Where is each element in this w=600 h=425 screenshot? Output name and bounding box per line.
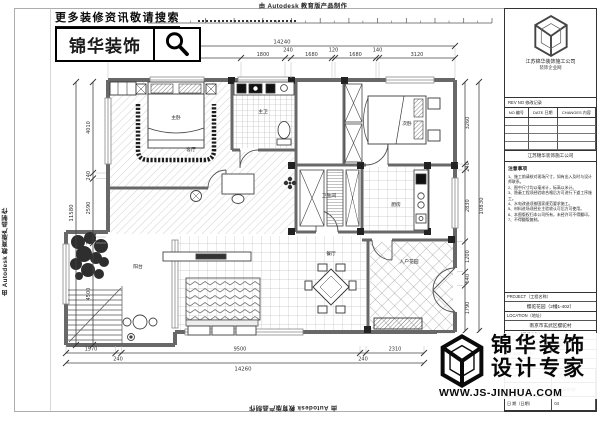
magnifier-cell	[153, 29, 199, 60]
dim-right: 10830 3260 240 2830 1200 540 1790	[457, 79, 485, 334]
svg-text:1200: 1200	[465, 250, 471, 263]
footer-brand-text: 锦华装饰 设计专家	[491, 334, 587, 380]
dim-bottom: 1970 240 9500 240 2310 14260	[63, 346, 427, 373]
search-hint-text: 更多装修资讯敬请搜索	[55, 9, 180, 27]
svg-text:240: 240	[358, 357, 368, 363]
brand-name: 锦华装饰	[57, 29, 153, 60]
brand-search-box: 锦华装饰	[55, 27, 201, 62]
svg-text:11580: 11580	[69, 204, 75, 222]
room-label-entry-garden: 入户花园	[399, 258, 418, 265]
svg-text:540: 540	[465, 274, 471, 284]
svg-text:2590: 2590	[86, 202, 92, 215]
footer-brand-line2: 设计专家	[491, 357, 587, 380]
svg-text:3120: 3120	[411, 52, 424, 58]
svg-text:1790: 1790	[465, 302, 471, 315]
note-line: 1、施工前请核对现场尺寸，如有出入及时与设计师联系。	[508, 174, 593, 185]
notes-title: 注意事项	[508, 165, 593, 172]
dim-left: 11580 4010 240 2590 240 4500	[69, 79, 106, 348]
title-block-logo-section: 江苏锦华装饰施工公司 装饰企业网	[505, 9, 596, 98]
company-row: 江苏锦华装饰施工公司	[505, 151, 596, 162]
svg-text:2310: 2310	[389, 347, 402, 353]
autodesk-banner-bottom: 由 Autodesk 教育版产品制作	[218, 404, 368, 413]
room-label-kitchen: 厨房	[391, 201, 401, 208]
room-label-bathroom: 卫生间	[322, 192, 337, 199]
room-label-master-bedroom: 主卧	[171, 114, 181, 121]
kitchen-appliances	[414, 170, 428, 230]
drawing-sheet: 主卧 客厅 主卫 次卧 卫生间 厨房 餐厅 入户花园 阳台 14240 5470…	[0, 0, 600, 420]
note-line: 7、不得翻版复制。	[508, 217, 593, 222]
dotted-line	[198, 20, 296, 22]
bedroom2-bed	[364, 96, 441, 144]
footer-brand-line1: 锦华装饰	[491, 334, 587, 357]
project-label: PROJECT（工程名称）	[505, 293, 596, 302]
location-label: LOCATION（地址）	[505, 312, 596, 321]
revision-caption: REV NO 修改记录	[505, 98, 596, 108]
location-value: 南京市玄武区樱驼村	[505, 321, 596, 331]
note-line: 3、隐蔽工程须经验收合格后方可进行下道工序施工。	[508, 190, 593, 201]
cube-logo-icon	[532, 14, 570, 58]
svg-text:240: 240	[113, 357, 123, 363]
hall-closet	[345, 84, 362, 162]
footer-website: WWW.JS-JINHUA.COM	[439, 387, 597, 399]
revision-table-rows	[505, 118, 596, 151]
sign-row-date: 日 期（日期） 04	[505, 397, 596, 411]
rev-col-changes: CHANGES 内容	[558, 108, 596, 117]
room-label-master-bath: 主卫	[258, 108, 268, 115]
svg-text:9500: 9500	[234, 347, 247, 353]
svg-text:2830: 2830	[465, 199, 471, 212]
entry-sideboard	[374, 318, 422, 329]
svg-text:1800: 1800	[257, 52, 270, 58]
rev-col-no: NO 编号	[505, 108, 529, 117]
svg-text:1680: 1680	[349, 52, 362, 58]
project-value: 樱驼花园（2幢1-402）	[505, 302, 596, 312]
revision-table-header: NO 编号 DATE 日期 CHANGES 内容	[505, 108, 596, 118]
svg-text:240: 240	[86, 171, 92, 181]
footer-cube-logo-icon	[437, 334, 487, 388]
svg-text:4010: 4010	[86, 121, 92, 134]
room-label-living: 客厅	[186, 146, 196, 153]
svg-text:140: 140	[373, 48, 383, 54]
autodesk-banner-left: 由 Autodesk 教育版产品制作	[1, 146, 10, 296]
notes-section: 注意事项 1、施工前请核对现场尺寸，如有出入及时与设计师联系。 2、图中尺寸均以…	[505, 162, 596, 293]
rev-col-date: DATE 日期	[529, 108, 558, 117]
svg-text:1970: 1970	[85, 347, 98, 353]
svg-text:4500: 4500	[86, 288, 92, 301]
svg-text:240: 240	[465, 162, 471, 172]
svg-text:10830: 10830	[479, 197, 485, 215]
svg-text:3260: 3260	[465, 117, 471, 130]
room-label-dining: 餐厅	[326, 250, 336, 257]
autodesk-banner-top: 由 Autodesk 教育版产品制作	[228, 1, 378, 10]
magnifier-icon	[162, 30, 192, 60]
company-name-top2: 装饰企业网	[505, 65, 596, 71]
svg-text:120: 120	[329, 48, 339, 54]
svg-text:1680: 1680	[305, 52, 318, 58]
footer-logo: 锦华装饰 设计专家 WWW.JS-JINHUA.COM	[437, 333, 598, 399]
svg-text:14240: 14240	[273, 40, 291, 46]
svg-text:240: 240	[86, 235, 92, 245]
svg-text:14260: 14260	[234, 367, 252, 373]
room-label-balcony: 阳台	[133, 263, 143, 270]
svg-text:240: 240	[283, 48, 293, 54]
balcony-table	[123, 315, 157, 341]
room-label-bedroom2: 次卧	[402, 120, 412, 127]
